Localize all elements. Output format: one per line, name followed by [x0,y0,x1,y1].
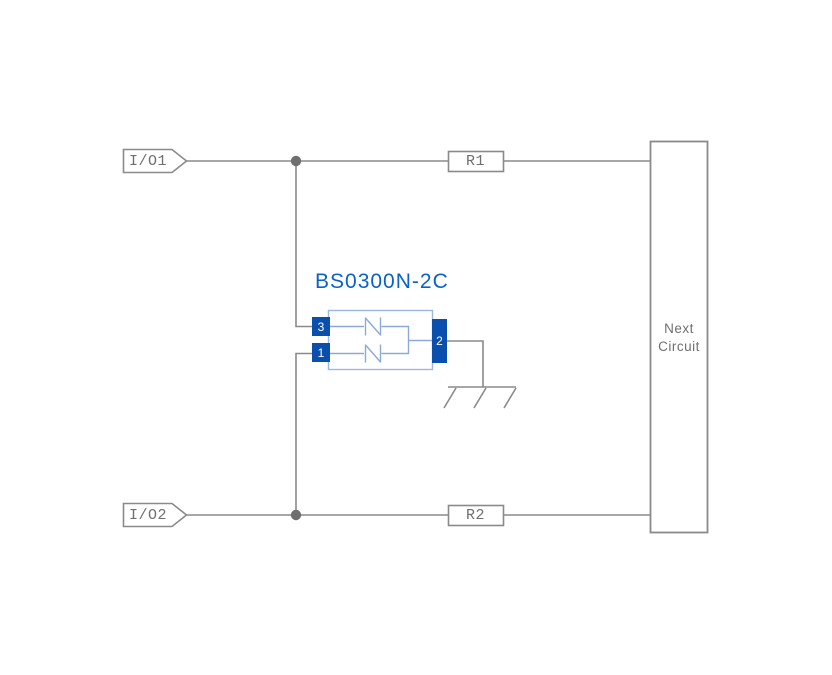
ground-hatch-3 [504,388,516,408]
pin-3-number: 3 [318,320,325,334]
junction-dot-top [291,156,301,166]
wire-junction-to-pin1 [296,354,312,516]
junction-dot-bottom [291,510,301,520]
ground-hatch-2 [474,388,486,408]
pin-1: 1 [312,343,330,362]
component-title: BS0300N-2C [315,270,449,294]
ground-symbol [444,387,516,408]
r2-label: R2 [448,505,503,526]
next-circuit-label: Next Circuit [650,320,708,356]
io2-label: I/O2 [123,503,173,527]
io1-label: I/O1 [123,149,173,173]
circuit-diagram: I/O1 I/O2 R1 R2 Next Circuit BS0300N-2C … [0,0,832,675]
pin-3: 3 [312,317,330,336]
pin-1-number: 1 [318,346,325,360]
wire-pin2-to-ground [447,341,483,387]
r1-label: R1 [448,151,503,172]
ground-hatch-1 [444,388,456,408]
pin-2-number: 2 [436,334,443,348]
wire-junction-to-pin3 [296,161,312,327]
pin-2: 2 [432,319,447,363]
